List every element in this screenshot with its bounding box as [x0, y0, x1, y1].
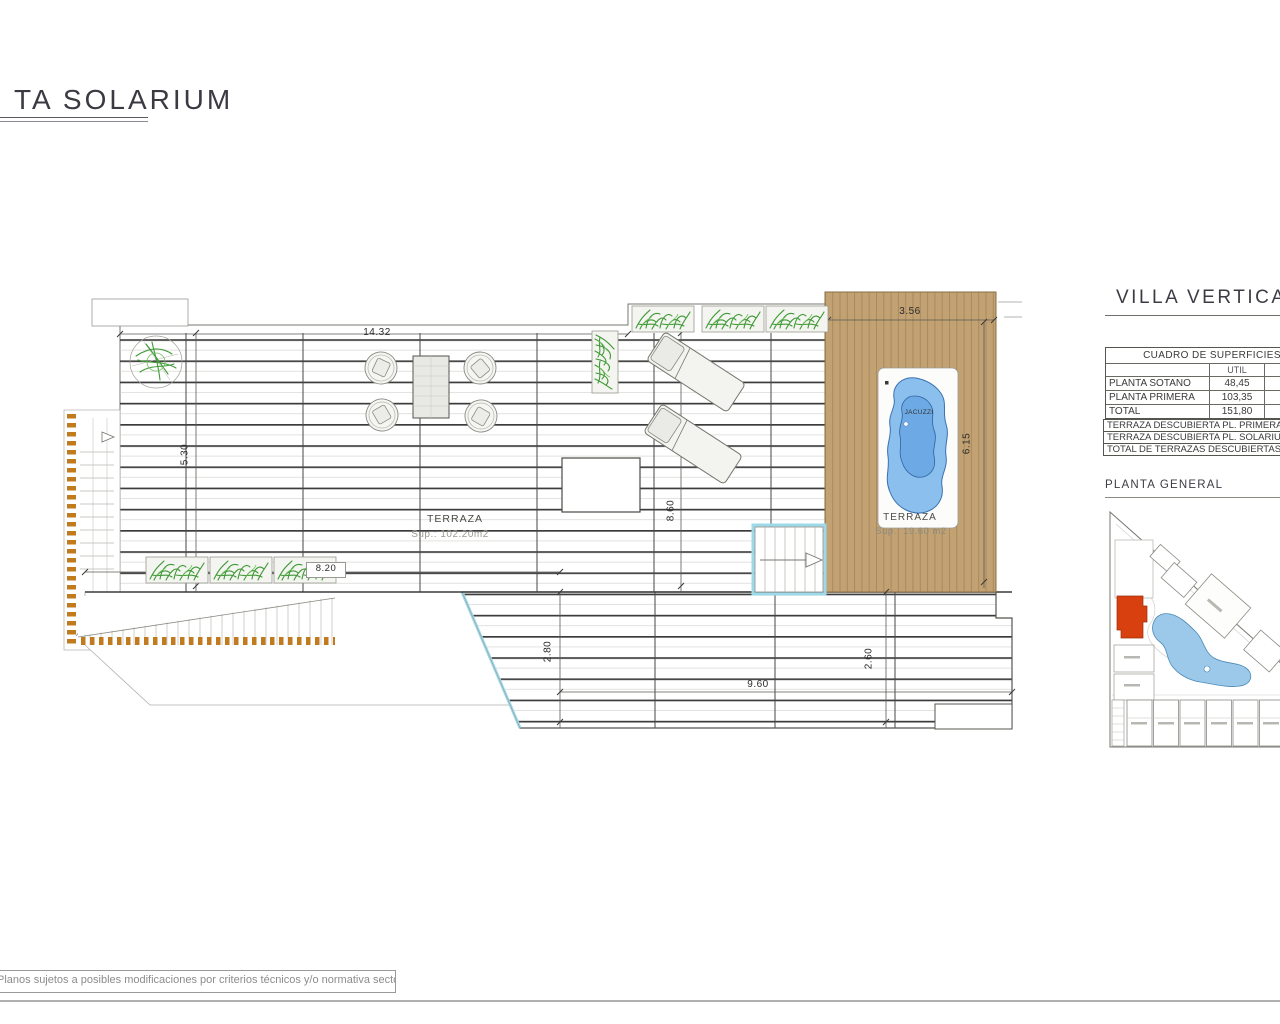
dim-deck-width: 3.56 [888, 306, 932, 317]
site-plan-title-underline [1105, 497, 1280, 498]
dim-lower-right-height: 2.60 [864, 643, 875, 675]
floor-plan-drawing [0, 0, 1280, 1024]
site-plan [1110, 512, 1280, 747]
footer-disclaimer: Planos sujetos a posibles modificaciones… [0, 970, 396, 993]
dim-top-width: 14.32 [355, 327, 399, 338]
surfaces-table-title: CUADRO DE SUPERFICIES [1106, 348, 1280, 363]
jacuzzi-label: JACUZZI [896, 409, 942, 416]
villa-title: VILLA VERTICA [1116, 287, 1280, 309]
deck-terrace-area: Sup.: 19.60 m2 [867, 526, 955, 537]
site-plan-title: PLANTA GENERAL [1105, 479, 1223, 491]
dim-lower-left-height: 2.80 [543, 636, 554, 668]
dim-lower-width: 9.60 [736, 679, 780, 690]
terrace-row: TOTAL DE TERRAZAS DESCUBIERTAS [1103, 443, 1280, 456]
surfaces-table: CUADRO DE SUPERFICIES UTIL PLANTA SOTANO… [1105, 347, 1280, 419]
surfaces-col-util: UTIL [1209, 364, 1264, 376]
sheet-title-underline [0, 117, 148, 122]
highlighted-villa [1117, 596, 1147, 638]
table-row: PLANTA SOTANO 48,45 [1106, 376, 1280, 390]
dim-deck-height: 6.15 [962, 428, 973, 460]
plan-sheet: TA SOLARIUM 14.32 3.56 5.30 8.60 6.15 8.… [0, 0, 1280, 1024]
deck-terrace-label: TERRAZA [880, 512, 940, 523]
dim-left-height: 5.30 [180, 439, 191, 471]
lower-left-region [78, 592, 510, 705]
dim-planter-width: 8.20 [306, 562, 346, 578]
wood-deck [825, 292, 1022, 592]
sheet-title: TA SOLARIUM [14, 84, 233, 116]
main-terrace-area: Sup.: 102.20m2 [398, 529, 502, 540]
table-row: TOTAL 151,80 [1106, 404, 1280, 418]
dim-mid-height: 8.60 [666, 495, 677, 527]
sheet-border-line [0, 1000, 1280, 1002]
table-row: PLANTA PRIMERA 103,35 [1106, 390, 1280, 404]
villa-title-underline [1105, 315, 1280, 316]
deck-stairs [753, 525, 825, 594]
main-terrace-label: TERRAZA [415, 513, 495, 525]
